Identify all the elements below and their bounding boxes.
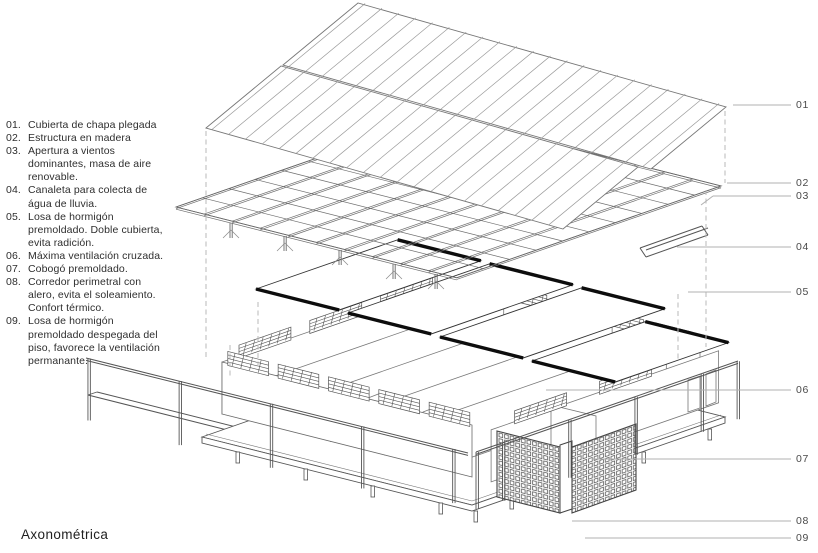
legend: 01.Cubierta de chapa plegada 02.Estructu… bbox=[6, 119, 170, 368]
legend-item-03: 03.Apertura a vientos dominantes, masa d… bbox=[6, 145, 170, 184]
axonometric-diagram-page: 01.Cubierta de chapa plegada 02.Estructu… bbox=[0, 0, 818, 553]
legend-item-09: 09.Losa de hormigón premoldado despegada… bbox=[6, 315, 170, 367]
callout-09: 09 bbox=[796, 532, 809, 544]
legend-item-01: 01.Cubierta de chapa plegada bbox=[6, 119, 170, 132]
legend-item-05: 05.Losa de hormigón premoldado. Doble cu… bbox=[6, 211, 170, 250]
callout-02: 02 bbox=[796, 177, 809, 189]
legend-item-02: 02.Estructura en madera bbox=[6, 132, 170, 145]
callout-04: 04 bbox=[796, 241, 809, 253]
callout-06: 06 bbox=[796, 384, 809, 396]
legend-item-04: 04.Canaleta para colecta de água de lluv… bbox=[6, 184, 170, 210]
callout-03: 03 bbox=[796, 190, 809, 202]
legend-item-06: 06.Máxima ventilación cruzada. bbox=[6, 250, 170, 263]
legend-item-07: 07.Cobogó premoldado. bbox=[6, 263, 170, 276]
legend-item-08: 08.Corredor perimetral con alero, evita … bbox=[6, 276, 170, 315]
folded-sheet-roof-layer bbox=[206, 3, 726, 229]
callout-05: 05 bbox=[796, 286, 809, 298]
callout-01: 01 bbox=[796, 99, 809, 111]
callout-08: 08 bbox=[796, 515, 809, 527]
callout-07: 07 bbox=[796, 453, 809, 465]
drawing-title: Axonométrica bbox=[21, 527, 108, 542]
